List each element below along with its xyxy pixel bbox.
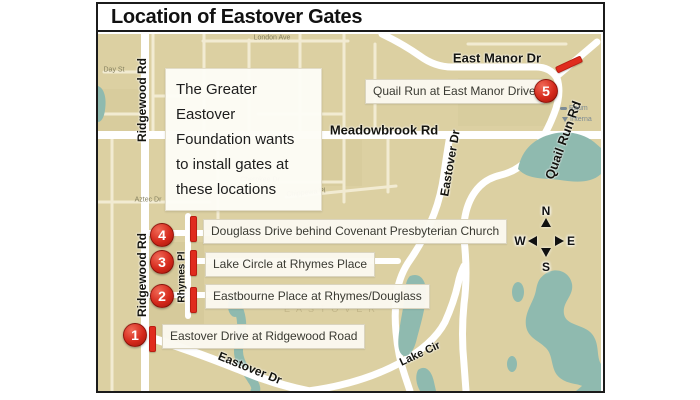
gate-label-1: Eastover Drive at Ridgewood Road bbox=[162, 324, 365, 349]
compass-arrow-south bbox=[541, 248, 551, 257]
minor-label-aztec: Aztec Dr bbox=[135, 197, 162, 204]
road-east-side bbox=[463, 239, 467, 391]
gate-bar-1 bbox=[149, 326, 156, 352]
gate-marker-4: 4 bbox=[150, 223, 174, 247]
poi-text: Raum bbox=[569, 105, 588, 112]
road-label-ridgewood-north: Ridgewood Rd bbox=[135, 58, 149, 142]
road-label-east-manor: East Manor Dr bbox=[453, 51, 541, 66]
edge-poi-2: Interna bbox=[562, 116, 592, 123]
gate-marker-2: 2 bbox=[150, 284, 174, 308]
compass-e: E bbox=[567, 234, 575, 248]
compass-arrow-west bbox=[528, 236, 537, 246]
compass-arrow-north bbox=[541, 218, 551, 227]
title-bar: Location of Eastover Gates bbox=[98, 4, 603, 32]
compass-rose: N W E S bbox=[515, 204, 577, 278]
edge-poi-1: Raum bbox=[560, 105, 588, 112]
poi-icon bbox=[562, 117, 568, 122]
gate-label-2: Eastbourne Place at Rhymes/Douglass bbox=[205, 284, 430, 309]
road-label-meadowbrook: Meadowbrook Rd bbox=[330, 123, 438, 138]
poi-text: Interna bbox=[570, 116, 592, 123]
pond-small bbox=[512, 282, 524, 302]
lake-southeast bbox=[526, 270, 601, 391]
info-box: The Greater Eastover Foundation wants to… bbox=[165, 68, 322, 211]
compass-arrow-east bbox=[555, 236, 564, 246]
gate-bar-2 bbox=[190, 287, 197, 313]
pond-long-lower bbox=[416, 368, 436, 391]
gate-marker-1: 1 bbox=[123, 323, 147, 347]
gate-marker-3: 3 bbox=[150, 250, 174, 274]
compass-s: S bbox=[542, 260, 550, 274]
gate-label-5: Quail Run at East Manor Drive bbox=[365, 79, 544, 104]
poi-icon bbox=[560, 107, 567, 110]
pond-small bbox=[507, 356, 517, 372]
gate-marker-5: 5 bbox=[534, 79, 558, 103]
compass-n: N bbox=[542, 204, 551, 218]
minor-label-day: Day St bbox=[103, 67, 124, 74]
minor-label-london: London Ave bbox=[254, 35, 291, 42]
gate-bar-4 bbox=[190, 216, 197, 242]
road-label-ridgewood-south: Ridgewood Rd bbox=[135, 233, 149, 317]
map-canvas: EASTOVER Ridgewood Rd Ridgewood Rd Meado… bbox=[98, 34, 601, 391]
compass-w: W bbox=[514, 234, 525, 248]
page-title: Location of Eastover Gates bbox=[111, 6, 362, 29]
gate-label-4: Douglass Drive behind Covenant Presbyter… bbox=[203, 219, 507, 244]
gate-label-3: Lake Circle at Rhymes Place bbox=[205, 252, 375, 277]
gate-bar-3 bbox=[190, 250, 197, 276]
page: Location of Eastover Gates bbox=[0, 0, 700, 400]
road-label-rhymes: Rhymes Pl bbox=[177, 251, 188, 302]
map-panel: Location of Eastover Gates bbox=[96, 2, 605, 393]
